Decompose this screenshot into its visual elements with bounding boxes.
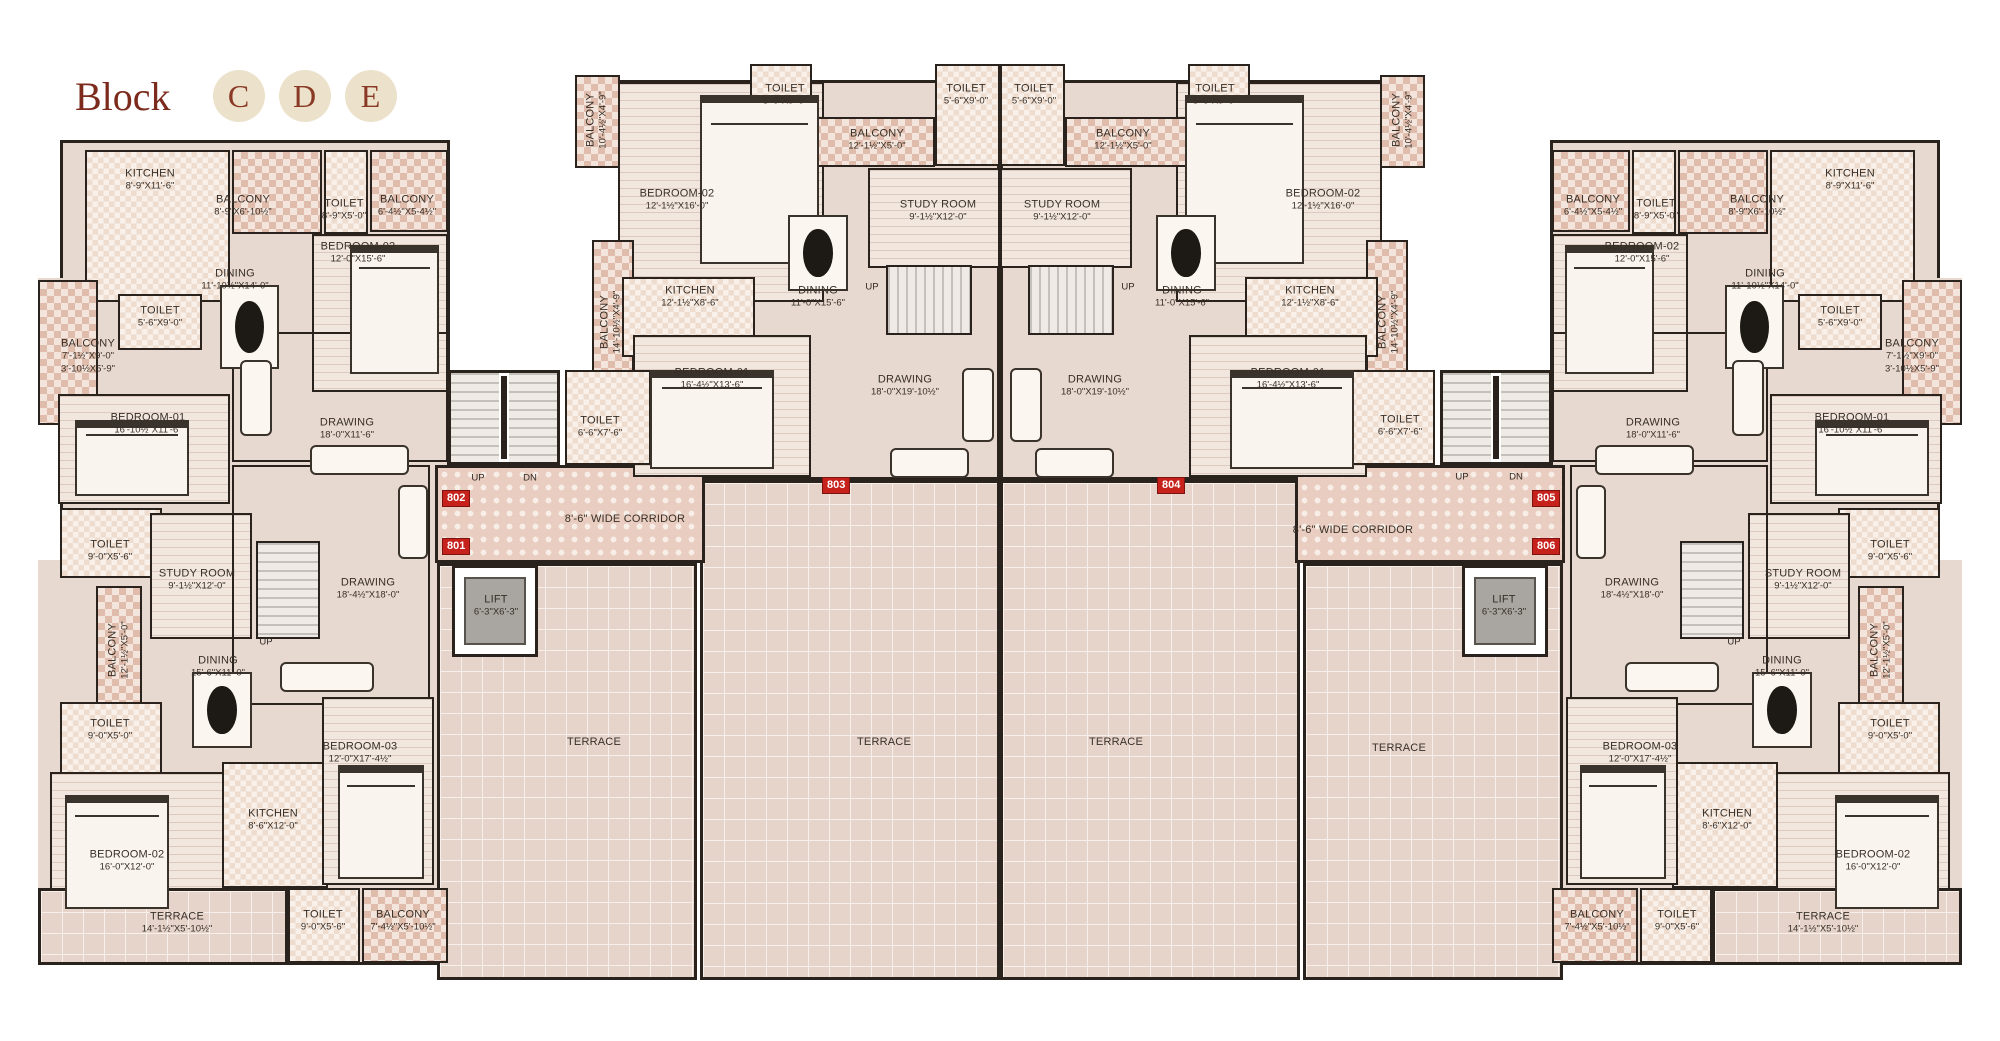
room-label-dims: 15'-6"X11'-0" — [191, 668, 245, 680]
room-label-dims: 3'-10½X5'-9" — [61, 363, 115, 375]
plan-title: Block C D E — [75, 70, 411, 122]
room-label: KITCHEN8'-9"X11'-6" — [125, 167, 175, 194]
room-label: TOILET6'-6"X7'-6" — [1378, 413, 1422, 440]
room-label-name: DINING — [1155, 284, 1209, 298]
room-label-name: TERRACE — [1372, 741, 1426, 755]
room-label-dims: 5'-6"X9'-0" — [944, 96, 988, 108]
room-label: LIFT6'-3"X6'-3" — [1482, 593, 1526, 620]
room-label-name: TOILET — [88, 538, 132, 552]
room-label-name: KITCHEN — [1281, 284, 1338, 298]
room-label-dims: 9'-1½"X12'-0" — [159, 581, 235, 593]
room-label-dims: 9'-1½"X12'-0" — [900, 212, 976, 224]
room-label-dims: 14'-1½"X5'-10½" — [142, 924, 213, 936]
room-label: TOILET9'-0"X5'-0" — [1868, 717, 1912, 744]
stairs-unit-806 — [1680, 541, 1744, 639]
room-label-dims: 6'-6"X7'-6" — [1378, 427, 1422, 439]
room-label: BALCONY10'-4½"X4'-9" — [584, 91, 611, 148]
room-label-name: TOILET — [301, 908, 345, 922]
room-label-dims: 7'-4½"X5'-10½" — [370, 922, 435, 934]
room-label-dims: 12'-1½"X5'-0" — [848, 141, 905, 153]
room-label: DINING11'-10½"X14'-0" — [201, 267, 268, 294]
room-label-dims: 9'-0"X5'-0" — [1868, 731, 1912, 743]
room-label: DRAWING18'-0"X11'-6" — [1626, 416, 1680, 443]
room-label: TOILET9'-0"X5'-6" — [1868, 538, 1912, 565]
balcony-802-top2 — [370, 150, 448, 232]
room-label-dims: 14'-10½"X4'-9" — [1390, 291, 1402, 354]
room-label: BEDROOM-0116'-10½"X11'-6" — [1815, 411, 1890, 438]
room-label: 8'-6" WIDE CORRIDOR — [1293, 523, 1413, 537]
room-label-dims: 8'-6"X12'-0" — [1702, 821, 1752, 833]
unit-number-badge: 804 — [1157, 477, 1185, 494]
room-label-dims: 11'-0"X15'-6" — [791, 298, 845, 310]
room-label-name: TOILET — [763, 82, 807, 96]
sofa — [1625, 662, 1719, 692]
room-label-name: BALCONY — [214, 193, 271, 207]
room-label: BEDROOM-0312'-0"X17'-4½" — [1603, 740, 1678, 767]
stair-direction-label: DN — [1509, 472, 1523, 483]
room-label: BALCONY10'-4½"X4'-9" — [1390, 91, 1417, 148]
room-label-dims: 7'-1½"X9'-0" — [1885, 351, 1939, 363]
room-label-dims: 15'-6"X11'-0" — [1755, 668, 1809, 680]
room-label: BALCONY7'-1½"X9'-0"3'-10½X5'-9" — [61, 337, 115, 376]
room-label-dims: 8'-9"X5'-0" — [1634, 211, 1678, 223]
sofa — [1035, 448, 1114, 478]
room-label-dims: 10'-4½"X4'-9" — [1404, 91, 1416, 148]
room-label-dims: 5'-6"X9'-0" — [138, 318, 182, 330]
stair-rail — [1493, 376, 1499, 459]
room-label: BALCONY14'-10½"X4'-9" — [1376, 291, 1403, 354]
room-label: STUDY ROOM9'-1½"X12'-0" — [1024, 198, 1100, 225]
room-label: BALCONY12'-1½"X5'-0" — [848, 127, 905, 154]
block-badge-c: C — [213, 70, 265, 122]
unit-number-badge: 806 — [1532, 538, 1560, 555]
toilet-804-top2 — [1000, 64, 1065, 166]
unit-number-badge: 801 — [442, 538, 470, 555]
room-label-dims: 8'-9"X6'-10½" — [1728, 207, 1785, 219]
room-label-dims: 5'-0"X9'-0" — [1193, 96, 1237, 108]
room-label-dims: 12'-1½"X16'-0" — [1286, 201, 1361, 213]
room-label: BALCONY6'-4½"X5-4½" — [1564, 193, 1622, 220]
room-label-name: BEDROOM-01 — [1251, 366, 1326, 380]
room-label: BALCONY6'-4½"X5-4½" — [378, 193, 436, 220]
room-label-dims: 12'-0"X15'-6" — [321, 254, 396, 266]
room-label-name: STUDY ROOM — [900, 198, 976, 212]
room-label-name: DRAWING — [320, 416, 374, 430]
room-label-dims: 18'-0"X19'-10½" — [1061, 387, 1129, 399]
sofa — [310, 445, 409, 475]
room-label: BALCONY7'-4½"X5'-10½" — [1564, 908, 1629, 935]
room-label-name: BEDROOM-02 — [90, 848, 165, 862]
room-label-name: BALCONY — [378, 193, 436, 207]
room-label-dims: 9'-0"X5'-6" — [1868, 552, 1912, 564]
stair-flight — [509, 373, 557, 462]
room-label-name: TOILET — [1655, 908, 1699, 922]
room-label: DRAWING18'-4½"X18'-0" — [337, 576, 400, 603]
room-label-name: BALCONY — [370, 908, 435, 922]
room-label: BALCONY14'-10½"X4'-9" — [598, 291, 625, 354]
room-label-name: BALCONY — [584, 91, 598, 148]
room-label: LIFT6'-3"X6'-3" — [474, 593, 518, 620]
block-badge-e: E — [345, 70, 397, 122]
room-label: BEDROOM-0216'-0"X12'-0" — [1836, 848, 1911, 875]
room-label: TOILET9'-0"X5'-6" — [301, 908, 345, 935]
room-label-name: BEDROOM-03 — [323, 740, 398, 754]
room-label: BALCONY12'-1½"X5'-0" — [1094, 127, 1151, 154]
sofa — [1010, 368, 1042, 442]
room-label: KITCHEN12'-1½"X8'-6" — [661, 284, 718, 311]
room-label-name: TERRACE — [857, 735, 911, 749]
room-label-dims: 5'-0"X9'-0" — [763, 96, 807, 108]
bed — [338, 765, 424, 879]
room-label-dims: 9'-1½"X12'-0" — [1765, 581, 1841, 593]
room-label: BEDROOM-0116'-4½"X13'-6" — [1251, 366, 1326, 393]
room-label-dims: 18'-0"X11'-6" — [1626, 430, 1680, 442]
room-label-name: DINING — [201, 267, 268, 281]
room-label-name: DRAWING — [871, 373, 939, 387]
room-label-dims: 18'-0"X11'-6" — [320, 430, 374, 442]
room-label: DRAWING18'-0"X19'-10½" — [871, 373, 939, 400]
room-label-name: KITCHEN — [1702, 807, 1752, 821]
room-label-name: BEDROOM-01 — [1815, 411, 1890, 425]
room-label-dims: 16'-0"X12'-0" — [1836, 862, 1911, 874]
room-label-dims: 5'-6"X9'-0" — [1012, 96, 1056, 108]
room-label-dims: 8'-9"X11'-6" — [125, 181, 175, 193]
room-label-name: TOILET — [1012, 82, 1056, 96]
stair-rail — [501, 376, 507, 459]
corridor-right — [1295, 465, 1565, 563]
room-label-dims: 9'-0"X5'-6" — [301, 922, 345, 934]
room-label-dims: 3'-10½X5'-9" — [1885, 363, 1939, 375]
room-label-dims: 7'-1½"X9'-0" — [61, 351, 115, 363]
room-label-dims: 14'-10½"X4'-9" — [612, 291, 624, 354]
room-label-name: DRAWING — [1061, 373, 1129, 387]
room-label: DINING15'-6"X11'-0" — [191, 654, 245, 681]
dining-table — [1725, 285, 1784, 369]
room-label-dims: 12'-1½"X5'-0" — [120, 621, 132, 678]
room-label: BEDROOM-0212'-1½"X16'-0" — [640, 187, 715, 214]
room-label-name: TERRACE — [142, 910, 213, 924]
room-label: DRAWING18'-0"X19'-10½" — [1061, 373, 1129, 400]
room-label-dims: 8'-9"X6'-10½" — [214, 207, 271, 219]
toilet-803-top2 — [935, 64, 1000, 166]
stair-direction-label: UP — [1727, 637, 1740, 648]
room-label: STUDY ROOM9'-1½"X12'-0" — [159, 567, 235, 594]
dining-table — [220, 285, 279, 369]
room-label-dims: 18'-0"X19'-10½" — [871, 387, 939, 399]
room-label-dims: 6'-3"X6'-3" — [1482, 607, 1526, 619]
sofa — [280, 662, 374, 692]
room-label-name: STUDY ROOM — [1765, 567, 1841, 581]
room-label-dims: 12'-1½"X8'-6" — [1281, 298, 1338, 310]
room-label: TOILET9'-0"X5'-6" — [88, 538, 132, 565]
room-label-name: TERRACE — [567, 735, 621, 749]
room-label-name: BEDROOM-02 — [1605, 240, 1680, 254]
room-label-name: 8'-6" WIDE CORRIDOR — [1293, 523, 1413, 537]
room-label: DRAWING18'-0"X11'-6" — [320, 416, 374, 443]
stairwell-right — [1440, 370, 1552, 465]
room-label-name: BALCONY — [1564, 193, 1622, 207]
room-label-dims: 8'-9"X11'-6" — [1825, 181, 1875, 193]
sofa — [1595, 445, 1694, 475]
room-label-dims: 14'-1½"X5'-10½" — [1788, 924, 1859, 936]
room-label-name: KITCHEN — [1825, 167, 1875, 181]
room-label-name: TOILET — [322, 197, 366, 211]
bed — [1580, 765, 1666, 879]
room-label-name: TOILET — [1868, 538, 1912, 552]
room-label: TERRACE — [1372, 741, 1426, 755]
room-label-name: LIFT — [474, 593, 518, 607]
room-label-name: BEDROOM-03 — [1603, 740, 1678, 754]
stair-direction-label: UP — [1121, 282, 1134, 293]
room-label: BALCONY7'-1½"X9'-0"3'-10½X5'-9" — [1885, 337, 1939, 376]
room-label: TERRACE — [1089, 735, 1143, 749]
stair-direction-label: UP — [259, 637, 272, 648]
room-label-name: STUDY ROOM — [159, 567, 235, 581]
unit-number-badge: 802 — [442, 490, 470, 507]
sofa — [240, 360, 272, 436]
room-label: TOILET5'-6"X9'-0" — [1818, 304, 1862, 331]
room-label: TOILET6'-6"X7'-6" — [578, 414, 622, 441]
room-label: TOILET9'-0"X5'-6" — [1655, 908, 1699, 935]
room-label: DINING11'-0"X15'-6" — [1155, 284, 1209, 311]
room-label: BALCONY8'-9"X6'-10½" — [1728, 193, 1785, 220]
room-label-dims: 12'-1½"X8'-6" — [661, 298, 718, 310]
room-label: STUDY ROOM9'-1½"X12'-0" — [900, 198, 976, 225]
room-label-dims: 6'-4½"X5-4½" — [378, 207, 436, 219]
room-label: BEDROOM-0116'-4½"X13'-6" — [675, 366, 750, 393]
room-label: KITCHEN8'-6"X12'-0" — [1702, 807, 1752, 834]
room-label: BEDROOM-0312'-0"X17'-4½" — [323, 740, 398, 767]
room-label-name: KITCHEN — [248, 807, 298, 821]
room-label-dims: 18'-4½"X18'-0" — [1601, 590, 1664, 602]
room-label: TOILET5'-6"X9'-0" — [1012, 82, 1056, 109]
room-label-name: TOILET — [1378, 413, 1422, 427]
room-label-dims: 7'-4½"X5'-10½" — [1564, 922, 1629, 934]
room-label-name: DRAWING — [1626, 416, 1680, 430]
room-label-dims: 12'-1½"X5'-0" — [1094, 141, 1151, 153]
room-label: TOILET5'-6"X9'-0" — [944, 82, 988, 109]
room-label-name: DRAWING — [337, 576, 400, 590]
room-label: BALCONY12'-1½"X5'-0" — [106, 621, 133, 678]
room-label-name: BALCONY — [1376, 291, 1390, 354]
stair-direction-label: UP — [471, 473, 484, 484]
room-label: TERRACE14'-1½"X5'-10½" — [1788, 910, 1859, 937]
room-label-name: TERRACE — [1788, 910, 1859, 924]
floor-plan: Block C D E — [0, 0, 2000, 1041]
room-label: DINING15'-6"X11'-0" — [1755, 654, 1809, 681]
room-label-dims: 16'-4½"X13'-6" — [1251, 380, 1326, 392]
room-label: BEDROOM-0212'-0"X15'-6" — [1605, 240, 1680, 267]
stair-flight — [451, 373, 499, 462]
room-label-name: BEDROOM-02 — [640, 187, 715, 201]
stair-direction-label: UP — [865, 282, 878, 293]
room-label: TERRACE — [857, 735, 911, 749]
sofa — [398, 485, 428, 559]
room-label-name: STUDY ROOM — [1024, 198, 1100, 212]
room-label: TOILET8'-9"X5'-0" — [1634, 197, 1678, 224]
room-label-name: TOILET — [1193, 82, 1237, 96]
room-label-name: DINING — [791, 284, 845, 298]
room-label: TOILET5'-0"X9'-0" — [1193, 82, 1237, 109]
terrace-3 — [1000, 480, 1300, 980]
stair-flight — [1501, 373, 1549, 462]
room-label-name: BALCONY — [1728, 193, 1785, 207]
room-label-name: BALCONY — [106, 621, 120, 678]
room-label-dims: 6'-6"X7'-6" — [578, 428, 622, 440]
room-label-dims: 6'-4½"X5-4½" — [1564, 207, 1622, 219]
room-label-name: BALCONY — [1564, 908, 1629, 922]
room-label-name: BEDROOM-02 — [321, 240, 396, 254]
room-label: BEDROOM-0216'-0"X12'-0" — [90, 848, 165, 875]
room-label: KITCHEN8'-6"X12'-0" — [248, 807, 298, 834]
room-label: BEDROOM-0212'-1½"X16'-0" — [1286, 187, 1361, 214]
room-label-dims: 10'-4½"X4'-9" — [598, 91, 610, 148]
unit-number-badge: 805 — [1532, 490, 1560, 507]
room-label-name: 8'-6" WIDE CORRIDOR — [565, 512, 685, 526]
room-label: KITCHEN8'-9"X11'-6" — [1825, 167, 1875, 194]
sofa — [1576, 485, 1606, 559]
stairs-unit-803 — [886, 265, 972, 335]
room-label-name: BALCONY — [61, 337, 115, 351]
dining-table — [192, 672, 252, 748]
room-label: TOILET9'-0"X5'-0" — [88, 717, 132, 744]
room-label: BEDROOM-0116'-10½"X11'-6" — [111, 411, 186, 438]
room-label-name: BALCONY — [1390, 91, 1404, 148]
sofa — [890, 448, 969, 478]
room-label-dims: 12'-0"X17'-4½" — [1603, 754, 1678, 766]
room-label-dims: 12'-1½"X16'-0" — [640, 201, 715, 213]
balcony-805-top2 — [1552, 150, 1630, 232]
room-label-dims: 9'-0"X5'-6" — [88, 552, 132, 564]
room-label-name: DINING — [191, 654, 245, 668]
room-label: KITCHEN12'-1½"X8'-6" — [1281, 284, 1338, 311]
room-label-name: BALCONY — [598, 291, 612, 354]
room-label-dims: 5'-6"X9'-0" — [1818, 318, 1862, 330]
dining-table — [1752, 672, 1812, 748]
room-label-name: KITCHEN — [661, 284, 718, 298]
room-label: BALCONY12'-1½"X5'-0" — [1868, 621, 1895, 678]
room-label: TOILET5'-0"X9'-0" — [763, 82, 807, 109]
room-label-name: TOILET — [138, 304, 182, 318]
dining-table — [1156, 215, 1216, 291]
room-label-name: TOILET — [1634, 197, 1678, 211]
room-label: TOILET5'-6"X9'-0" — [138, 304, 182, 331]
room-label-name: BALCONY — [1885, 337, 1939, 351]
room-label-name: BEDROOM-02 — [1286, 187, 1361, 201]
room-label-name: TERRACE — [1089, 735, 1143, 749]
stairwell-left — [448, 370, 560, 465]
room-label: STUDY ROOM9'-1½"X12'-0" — [1765, 567, 1841, 594]
room-label-name: BALCONY — [848, 127, 905, 141]
stair-direction-label: DN — [523, 473, 537, 484]
sofa — [1732, 360, 1764, 436]
room-label: 8'-6" WIDE CORRIDOR — [565, 512, 685, 526]
room-label-dims: 6'-3"X6'-3" — [474, 607, 518, 619]
room-label-dims: 11'-10½"X14'-0" — [201, 281, 268, 293]
terrace-2 — [700, 480, 1000, 980]
room-label: BEDROOM-0212'-0"X15'-6" — [321, 240, 396, 267]
room-label-name: DINING — [1731, 267, 1798, 281]
room-label-name: TOILET — [578, 414, 622, 428]
room-label: BALCONY8'-9"X6'-10½" — [214, 193, 271, 220]
room-label-dims: 16'-4½"X13'-6" — [675, 380, 750, 392]
block-badge-d: D — [279, 70, 331, 122]
room-label-dims: 18'-4½"X18'-0" — [337, 590, 400, 602]
room-label-name: TOILET — [88, 717, 132, 731]
room-label: DRAWING18'-4½"X18'-0" — [1601, 576, 1664, 603]
room-label-dims: 9'-1½"X12'-0" — [1024, 212, 1100, 224]
room-label-dims: 12'-1½"X5'-0" — [1882, 621, 1894, 678]
room-label: BALCONY7'-4½"X5'-10½" — [370, 908, 435, 935]
stair-flight — [1443, 373, 1491, 462]
unit-number-badge: 803 — [822, 477, 850, 494]
room-label-dims: 9'-0"X5'-6" — [1655, 922, 1699, 934]
room-label-name: BEDROOM-02 — [1836, 848, 1911, 862]
room-label-dims: 8'-6"X12'-0" — [248, 821, 298, 833]
room-label-dims: 16'-10½"X11'-6" — [1815, 425, 1890, 437]
room-label: TERRACE — [567, 735, 621, 749]
room-label-dims: 16'-10½"X11'-6" — [111, 425, 186, 437]
stairs-unit-804 — [1028, 265, 1114, 335]
room-label-dims: 12'-0"X17'-4½" — [323, 754, 398, 766]
block-word: Block — [75, 73, 171, 120]
room-label-name: TOILET — [1868, 717, 1912, 731]
room-label: TOILET8'-9"X5'-0" — [322, 197, 366, 224]
sofa — [962, 368, 994, 442]
room-label: DINING11'-10½"X14'-0" — [1731, 267, 1798, 294]
room-label-name: DINING — [1755, 654, 1809, 668]
room-label-dims: 11'-10½"X14'-0" — [1731, 281, 1798, 293]
room-label-dims: 12'-0"X15'-6" — [1605, 254, 1680, 266]
room-label-dims: 11'-0"X15'-6" — [1155, 298, 1209, 310]
room-label-name: BALCONY — [1868, 621, 1882, 678]
room-label-name: BEDROOM-01 — [675, 366, 750, 380]
stairs-unit-801 — [256, 541, 320, 639]
room-label-dims: 9'-0"X5'-0" — [88, 731, 132, 743]
room-label-name: KITCHEN — [125, 167, 175, 181]
room-label-name: LIFT — [1482, 593, 1526, 607]
room-label: DINING11'-0"X15'-6" — [791, 284, 845, 311]
room-label-name: TOILET — [944, 82, 988, 96]
room-label-dims: 16'-0"X12'-0" — [90, 862, 165, 874]
room-label: TERRACE14'-1½"X5'-10½" — [142, 910, 213, 937]
room-label-dims: 8'-9"X5'-0" — [322, 211, 366, 223]
stair-direction-label: UP — [1455, 472, 1468, 483]
room-label-name: BEDROOM-01 — [111, 411, 186, 425]
room-label-name: DRAWING — [1601, 576, 1664, 590]
dining-table — [788, 215, 848, 291]
room-label-name: TOILET — [1818, 304, 1862, 318]
room-label-name: BALCONY — [1094, 127, 1151, 141]
